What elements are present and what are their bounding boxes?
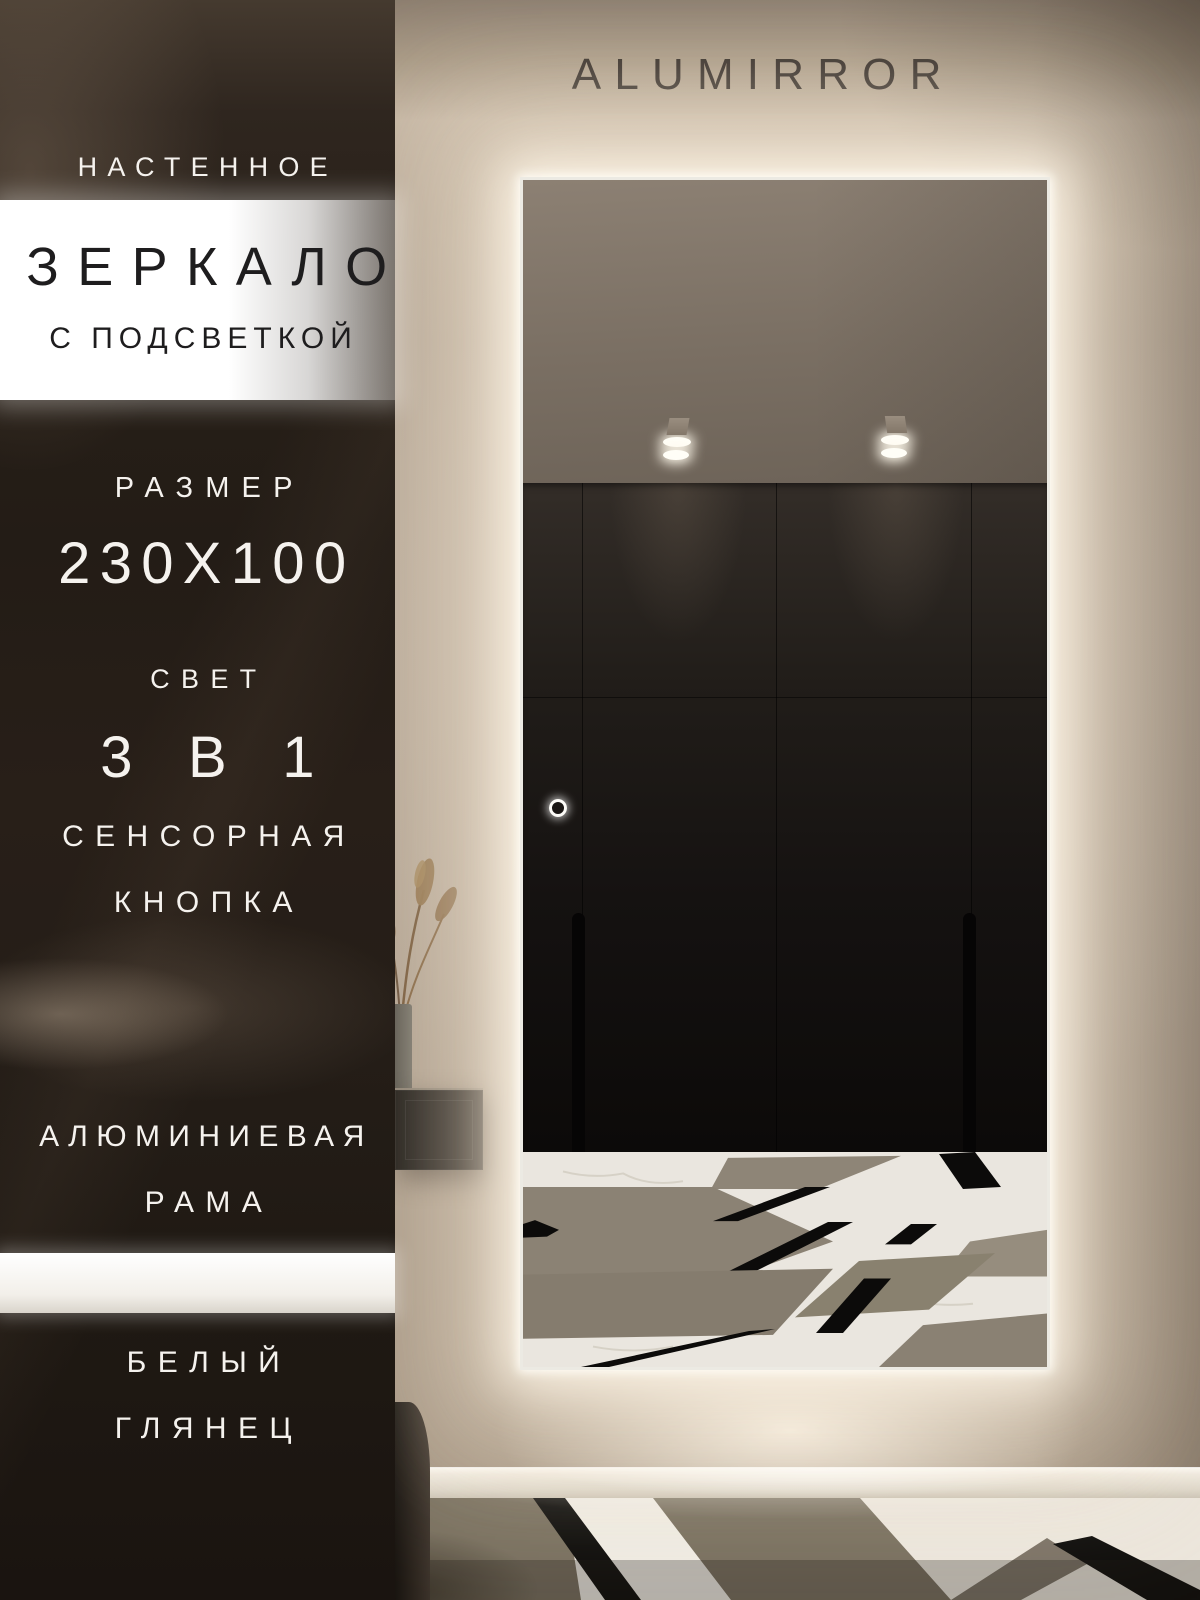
reflection-wardrobe bbox=[523, 483, 1047, 1152]
reflection-ceiling bbox=[523, 180, 1047, 483]
skirting-board bbox=[395, 1468, 1200, 1498]
door-handle bbox=[572, 913, 585, 1152]
product-banner: ALUMIRROR bbox=[0, 0, 1200, 1600]
info-panel: НАСТЕННОЕ ЗЕРКАЛО С ПОДСВЕТКОЙ РАЗМЕР 23… bbox=[0, 0, 395, 1600]
door-handle bbox=[963, 913, 976, 1152]
reflection-floor-pattern bbox=[523, 1152, 1047, 1367]
brand-logo: ALUMIRROR bbox=[420, 50, 1093, 100]
touch-label-2: КНОПКА bbox=[0, 886, 406, 920]
label-wall-mounted: НАСТЕННОЕ bbox=[0, 152, 405, 183]
touch-label-1: СЕНСОРНАЯ bbox=[0, 820, 406, 854]
frame-label-2: РАМА bbox=[0, 1186, 406, 1220]
finish-label-1: БЕЛЫЙ bbox=[0, 1346, 406, 1380]
white-band bbox=[0, 1253, 395, 1313]
spotlight-reflection bbox=[881, 416, 911, 460]
product-title: ЗЕРКАЛО bbox=[0, 236, 413, 298]
floor-tile-pattern bbox=[395, 1498, 1200, 1600]
product-subtitle: С ПОДСВЕТКОЙ bbox=[0, 322, 401, 356]
spotlight-glow bbox=[663, 437, 691, 447]
size-value: 230X100 bbox=[0, 530, 404, 597]
light-value: 3 В 1 bbox=[0, 724, 415, 791]
wall-console bbox=[395, 1088, 483, 1170]
led-mirror bbox=[520, 177, 1050, 1370]
spotlight-glow bbox=[881, 435, 909, 445]
hallway-floor bbox=[395, 1498, 1200, 1600]
frame-label-1: АЛЮМИНИЕВАЯ bbox=[0, 1120, 403, 1154]
spotlight-reflection bbox=[663, 418, 693, 462]
finish-label-2: ГЛЯНЕЦ bbox=[0, 1412, 406, 1446]
touch-sensor-button bbox=[549, 799, 567, 817]
reflection-floor bbox=[523, 1152, 1047, 1367]
spotlight-body bbox=[885, 416, 907, 433]
size-label: РАЗМЕР bbox=[0, 472, 407, 505]
light-label: СВЕТ bbox=[0, 664, 406, 695]
spotlight-glow bbox=[663, 450, 689, 460]
plant-vase bbox=[392, 1004, 412, 1090]
highlight-band bbox=[0, 200, 395, 400]
console-drawer-front bbox=[405, 1100, 473, 1160]
spotlight-body bbox=[667, 418, 690, 435]
spotlight-glow bbox=[881, 448, 907, 458]
wardrobe-seam bbox=[776, 483, 777, 1152]
wardrobe-seam bbox=[523, 697, 1047, 698]
